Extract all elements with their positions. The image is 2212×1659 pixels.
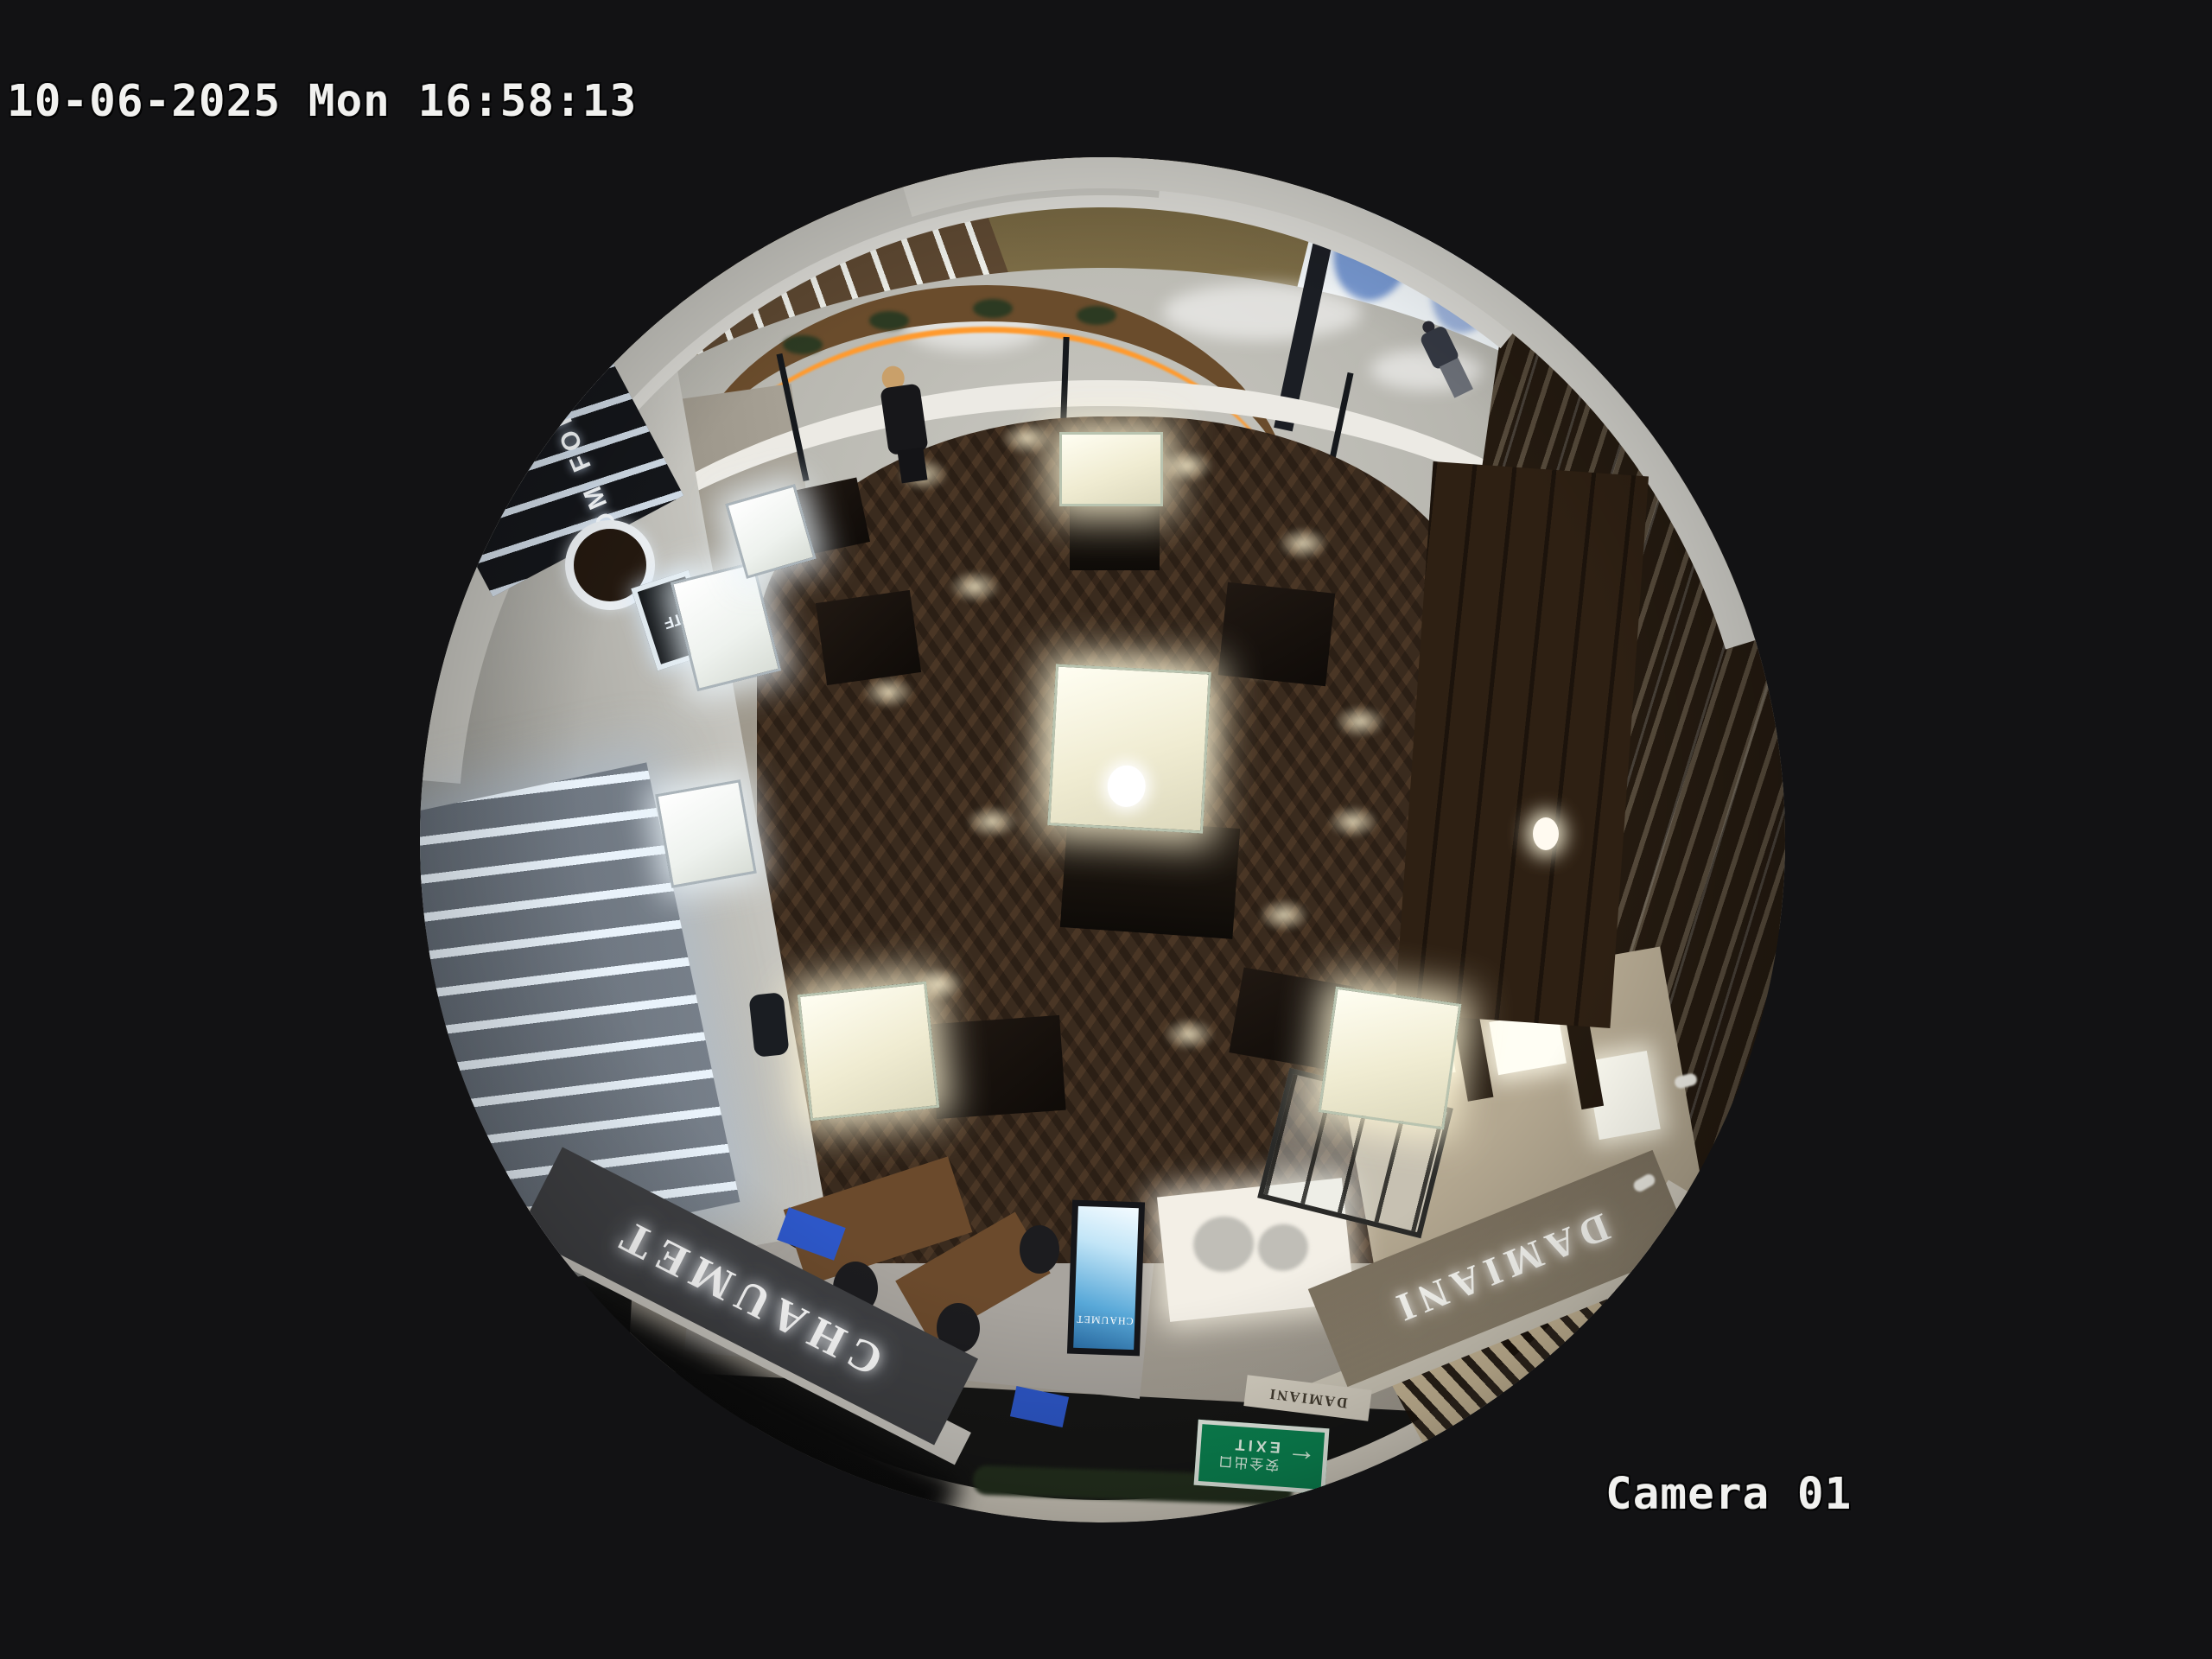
osd-camera-label: Camera 01 [1605, 1469, 1852, 1520]
osd-timestamp: 10-06-2025 Mon 16:58:13 [7, 76, 637, 127]
fisheye-view: BURCH [420, 157, 1785, 1522]
cctv-frame: 10-06-2025 Mon 16:58:13 Camera 01 BURCH [0, 0, 2212, 1659]
fisheye-vignette [420, 157, 1785, 1522]
